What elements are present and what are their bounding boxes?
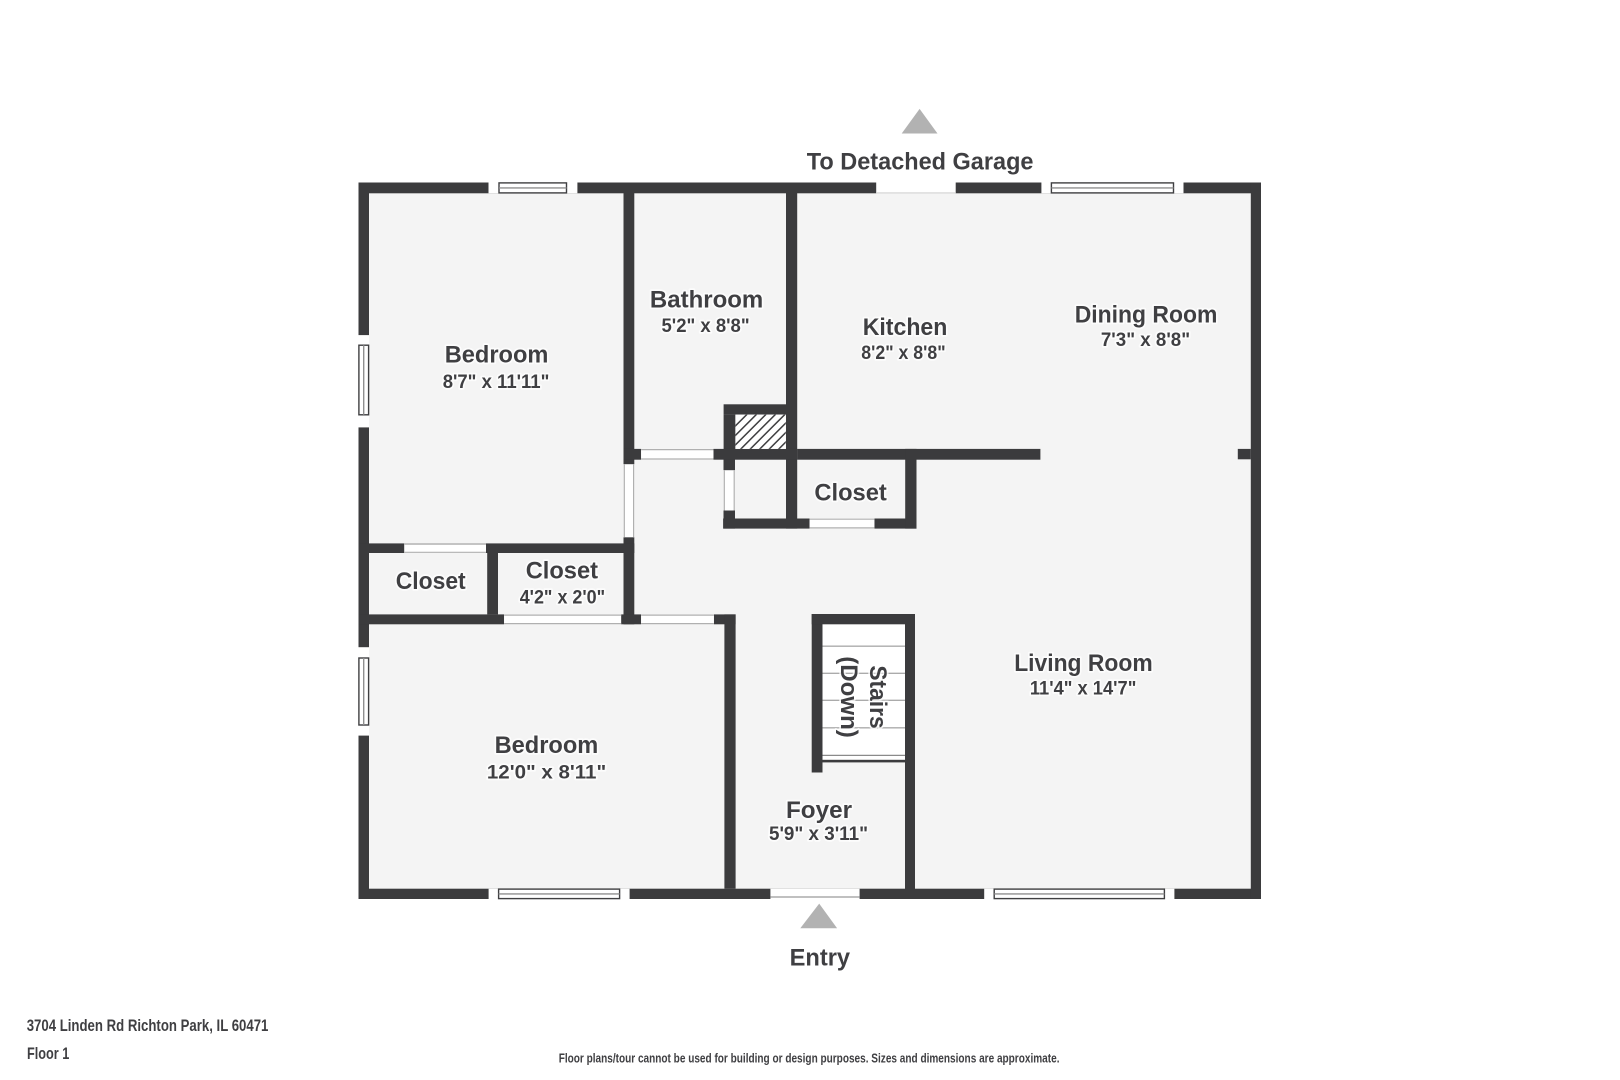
svg-text:5'2" x 8'8": 5'2" x 8'8" xyxy=(662,315,750,337)
svg-text:12'0" x 8'11": 12'0" x 8'11" xyxy=(487,762,606,784)
svg-text:Bedroom: Bedroom xyxy=(495,732,599,759)
svg-text:11'4" x 14'7": 11'4" x 14'7" xyxy=(1030,678,1137,700)
svg-text:Bathroom: Bathroom xyxy=(650,287,763,314)
svg-text:To Detached Garage: To Detached Garage xyxy=(807,149,1034,176)
svg-text:Foyer: Foyer xyxy=(786,797,852,824)
svg-text:3704 Linden Rd Richton Park, I: 3704 Linden Rd Richton Park, IL 60471 xyxy=(27,1017,269,1035)
svg-text:4'2" x 2'0": 4'2" x 2'0" xyxy=(520,587,606,609)
svg-text:Living Room: Living Room xyxy=(1014,650,1152,677)
svg-text:Closet: Closet xyxy=(396,568,466,595)
svg-text:Closet: Closet xyxy=(814,479,886,506)
svg-text:Kitchen: Kitchen xyxy=(863,314,948,341)
svg-text:Floor 1: Floor 1 xyxy=(27,1045,69,1063)
svg-text:Bedroom: Bedroom xyxy=(445,342,549,369)
svg-text:(Down): (Down) xyxy=(835,656,862,738)
svg-text:8'2" x 8'8": 8'2" x 8'8" xyxy=(861,342,945,364)
svg-text:7'3" x 8'8": 7'3" x 8'8" xyxy=(1101,329,1190,351)
svg-text:5'9" x 3'11": 5'9" x 3'11" xyxy=(769,823,868,845)
svg-text:Stairs: Stairs xyxy=(864,665,891,728)
svg-text:Dining Room: Dining Room xyxy=(1075,302,1218,329)
svg-text:Entry: Entry xyxy=(790,945,851,972)
svg-text:Floor plans/tour cannot be use: Floor plans/tour cannot be used for buil… xyxy=(559,1051,1060,1066)
svg-text:8'7" x 11'11": 8'7" x 11'11" xyxy=(443,371,550,393)
svg-text:Closet: Closet xyxy=(526,557,598,584)
